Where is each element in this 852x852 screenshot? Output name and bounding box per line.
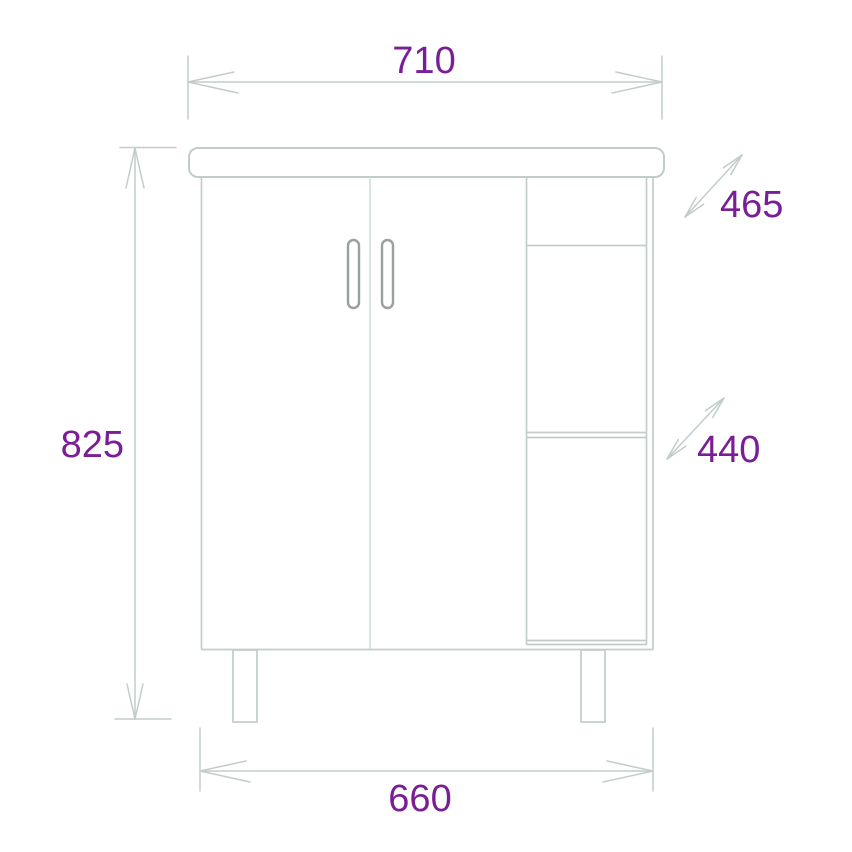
drawing-canvas: 710 825 660 465 440 [0,0,852,852]
dim-label-depth-lower: 440 [697,431,760,469]
left-leg [233,650,257,722]
right-door-handle [382,240,393,308]
right-leg [581,650,605,722]
dim-label-height: 825 [61,426,124,464]
dim-label-top-width: 710 [392,42,455,80]
dim-label-depth-upper: 465 [720,186,783,224]
dim-label-bottom-width: 660 [388,780,451,818]
left-door-handle [348,240,359,308]
shelf-column [527,177,647,645]
cabinet-line-drawing [0,0,852,852]
cabinet-body [201,177,654,650]
dim-height [115,148,176,720]
countertop [189,148,664,177]
